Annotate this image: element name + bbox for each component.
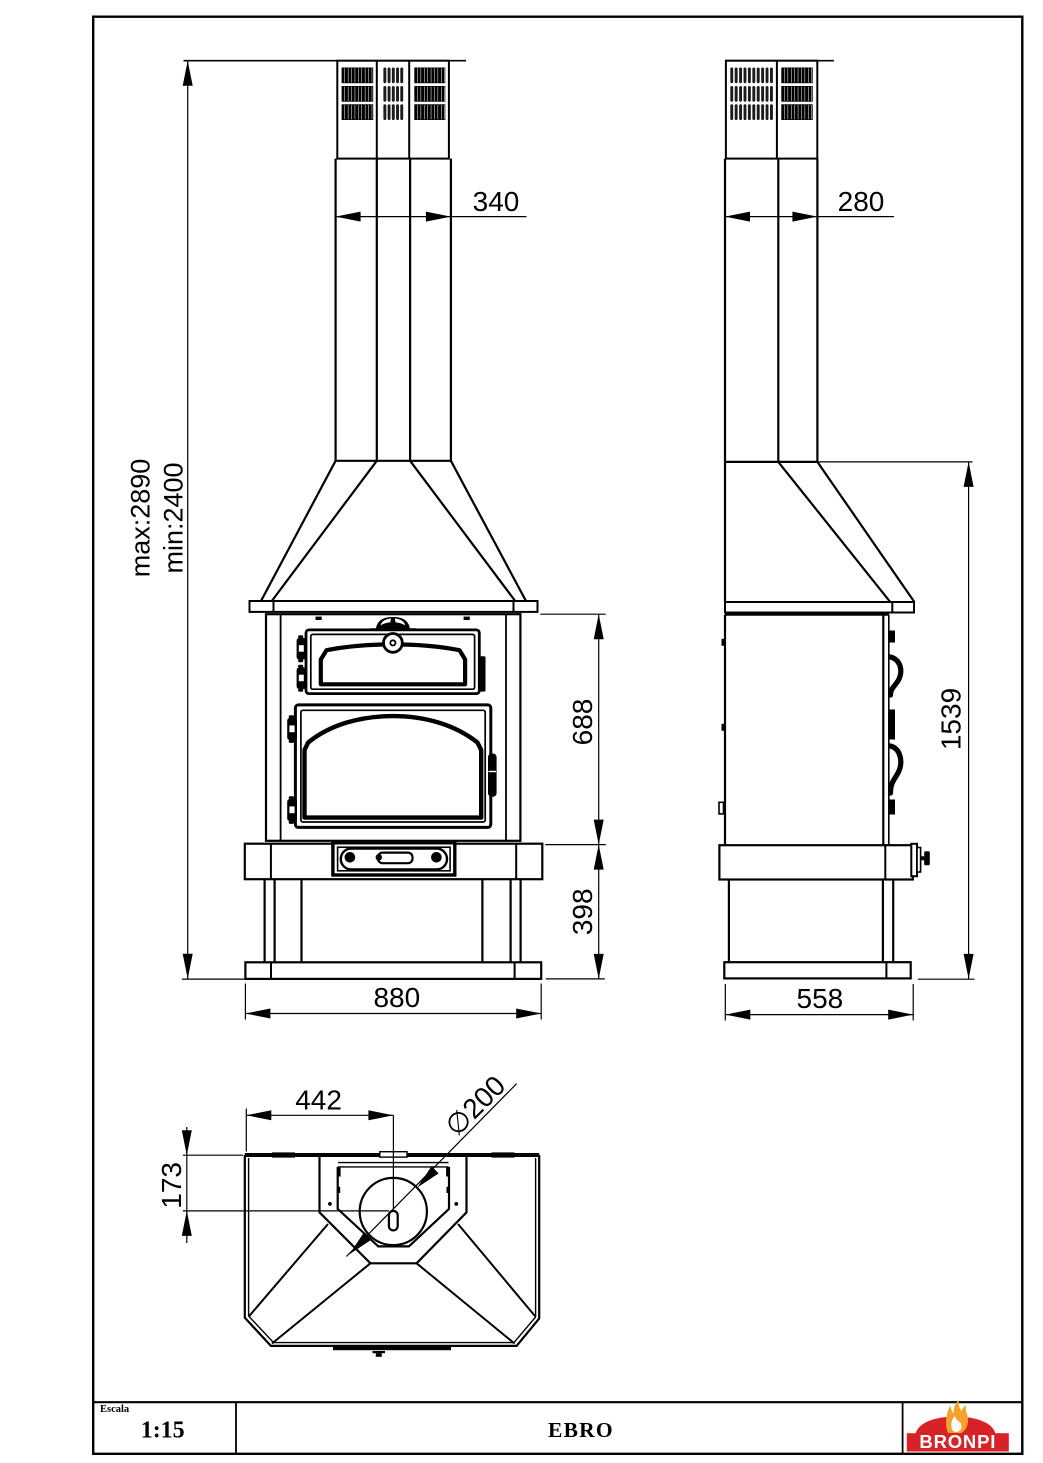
svg-text:1:15: 1:15 [141,1418,185,1444]
svg-text:398: 398 [567,888,598,935]
svg-text:Escala: Escala [100,1404,130,1415]
svg-text:BRONPI: BRONPI [919,1431,996,1452]
svg-text:688: 688 [567,699,598,746]
svg-text:558: 558 [797,983,844,1014]
svg-text:max:2890: max:2890 [126,459,156,578]
svg-text:442: 442 [295,1085,342,1116]
svg-text:min:2400: min:2400 [159,462,189,573]
svg-text:173: 173 [156,1162,187,1209]
svg-text:280: 280 [838,186,885,217]
svg-text:340: 340 [473,186,520,217]
svg-text:1539: 1539 [936,688,967,750]
svg-text:880: 880 [373,982,420,1013]
svg-text:EBRO: EBRO [548,1418,614,1442]
